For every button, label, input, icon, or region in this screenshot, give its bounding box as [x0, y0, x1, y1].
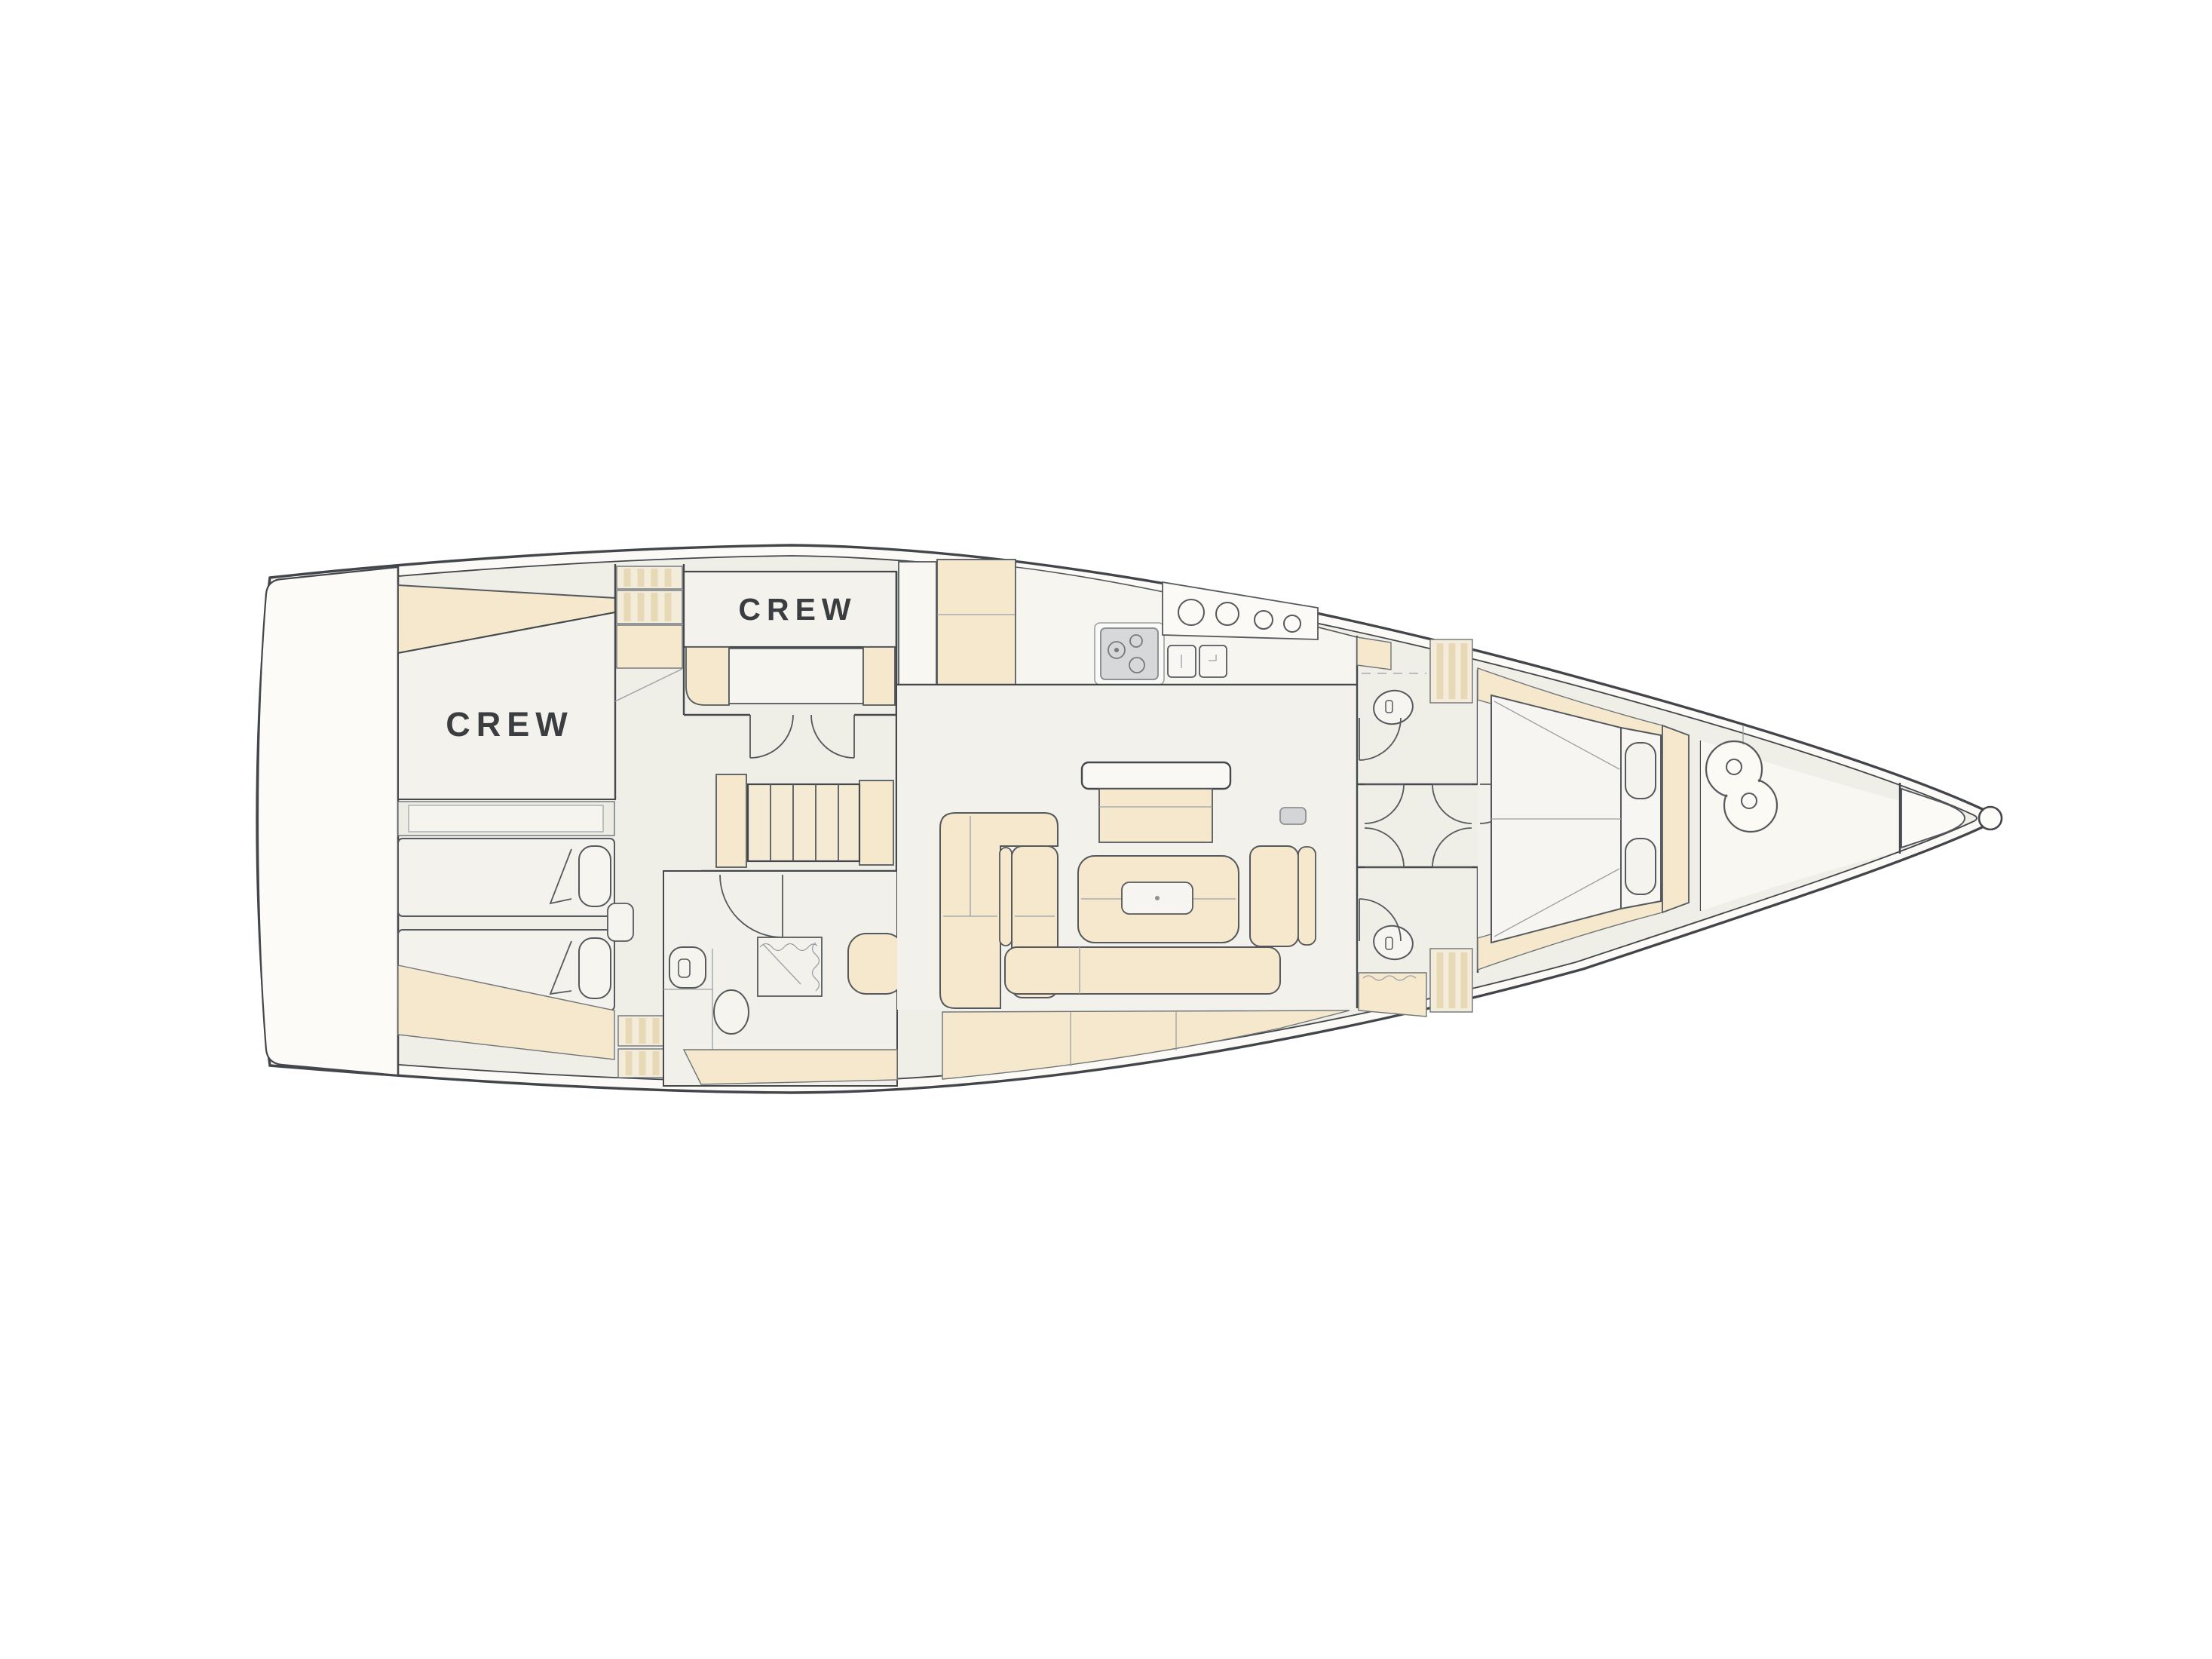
aft-crew-cabin-label: CREW	[446, 705, 573, 744]
locker-hatched	[1430, 949, 1472, 1012]
galley-portlights	[1163, 582, 1318, 639]
table-leaf	[1099, 789, 1212, 842]
salon	[897, 685, 1357, 1079]
bow-eye	[1979, 807, 2002, 830]
pillow	[579, 846, 611, 906]
shower	[758, 937, 822, 996]
berth-pad-left	[686, 647, 729, 705]
forepeak-bulkhead	[1662, 725, 1689, 912]
salon-floor-lockers	[942, 1010, 1350, 1079]
salon-seat-right	[1250, 846, 1298, 946]
pillow	[1625, 743, 1656, 799]
transom-platform	[258, 566, 398, 1076]
sink	[714, 990, 749, 1034]
stair-rail-left	[716, 774, 746, 867]
sink-bench	[1359, 973, 1426, 1017]
aft-head-floor-locker	[684, 1050, 897, 1084]
owner-v-berth	[1491, 695, 1661, 943]
bow-lockers	[1701, 725, 2002, 911]
sofa-backrest	[1000, 848, 1012, 946]
aft-top-lockers	[617, 566, 682, 668]
pillow	[1625, 839, 1656, 894]
mid-crew-cabin-label: CREW	[738, 592, 856, 627]
seat-right-backrest	[1298, 847, 1316, 945]
stair-rail-right	[859, 780, 893, 865]
deck-plan-svg: CREW CREW	[0, 0, 2212, 1659]
berth-step	[608, 903, 633, 941]
toilet	[669, 947, 706, 988]
salon-table	[1082, 762, 1230, 789]
companionway-stairs	[748, 784, 859, 861]
galley-cabinet-tan	[937, 560, 1016, 688]
pillow	[579, 938, 611, 998]
mid-crew-cabin: CREW	[684, 572, 896, 715]
stool	[848, 934, 904, 994]
locker-hatched	[1430, 639, 1472, 703]
berth-pad-right	[863, 647, 895, 705]
mid-crew-berth	[729, 649, 863, 704]
salon-bench	[1005, 947, 1280, 994]
head-shelf	[1357, 637, 1391, 670]
transom-box	[258, 567, 398, 1075]
yacht-deck-plan: CREW CREW	[0, 0, 2212, 1659]
aft-head	[663, 871, 904, 1086]
galley-tall-cabinet	[899, 562, 936, 686]
galley-stove	[1095, 623, 1164, 685]
mast	[1280, 808, 1306, 824]
